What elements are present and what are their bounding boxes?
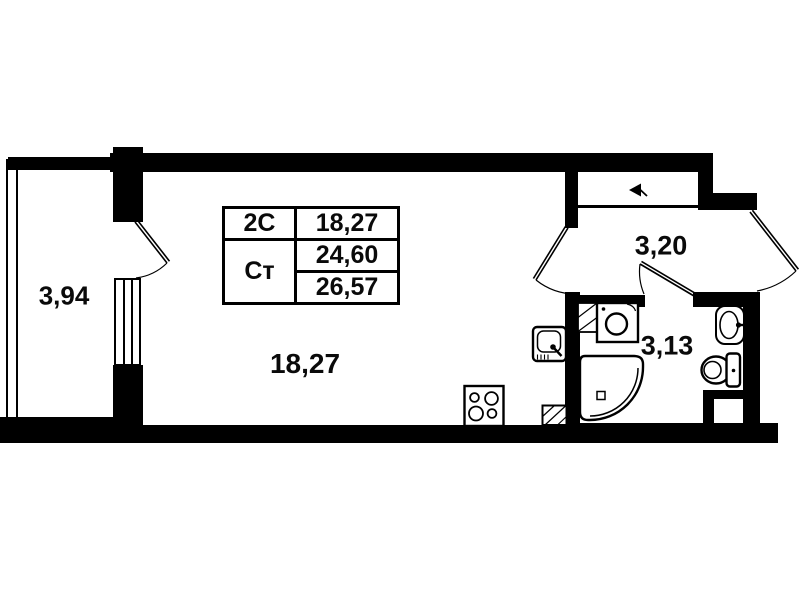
area-summary-table: 2С 18,27 Ст 24,60 26,57 bbox=[222, 206, 400, 305]
living-room-area-label: 18,27 bbox=[270, 348, 340, 380]
balcony-glazing bbox=[7, 159, 17, 421]
bathroom-area-label: 3,13 bbox=[641, 331, 694, 362]
total-area-cell: 24,60 bbox=[296, 240, 399, 272]
living-area-cell: 18,27 bbox=[296, 208, 399, 240]
balcony-door-swing bbox=[135, 220, 170, 278]
wall-exterior-top bbox=[110, 153, 713, 172]
toilet-symbol bbox=[702, 354, 741, 387]
wall-exterior-bottom-right bbox=[565, 423, 778, 443]
kitchen-sink-symbol bbox=[533, 327, 566, 361]
entrance-door-swing bbox=[750, 210, 798, 291]
bathroom-duct-hatch bbox=[578, 303, 597, 332]
gas-stove-symbol bbox=[465, 386, 504, 426]
window-mullion bbox=[123, 280, 125, 364]
wall-niche-left bbox=[565, 172, 578, 228]
bathroom-door-swing bbox=[639, 261, 695, 296]
wall-bathroom-left bbox=[565, 292, 580, 425]
apartment-type-cell: 2С bbox=[224, 208, 296, 240]
floor-plan: 3,94 18,27 3,20 3,13 2С 18,27 Ст 24,60 2… bbox=[0, 0, 799, 600]
studio-type-cell: Ст bbox=[224, 240, 296, 304]
wall-entry-step bbox=[713, 193, 757, 210]
hallway-area-label: 3,20 bbox=[635, 231, 688, 262]
kitchen-duct-hatch bbox=[543, 406, 567, 426]
vent-shaft-opening bbox=[714, 399, 743, 423]
washing-machine-symbol bbox=[597, 303, 638, 342]
wall-exterior-bottom bbox=[0, 425, 582, 443]
total-area-with-balcony-cell: 26,57 bbox=[296, 272, 399, 304]
entry-threshold-line bbox=[578, 205, 698, 208]
wall-balcony-top bbox=[8, 157, 113, 170]
washbasin-symbol bbox=[716, 306, 746, 344]
window-balcony bbox=[114, 278, 141, 366]
window-mullion bbox=[131, 280, 133, 364]
wall-niche-right bbox=[698, 172, 713, 210]
room-door-swing bbox=[533, 227, 577, 295]
wall-balcony-pier-upper bbox=[113, 147, 143, 222]
wall-bathroom-top-left bbox=[578, 295, 645, 307]
balcony-area-label: 3,94 bbox=[39, 281, 90, 312]
shower-symbol bbox=[580, 356, 643, 420]
entrance-arrow-icon bbox=[629, 184, 647, 197]
